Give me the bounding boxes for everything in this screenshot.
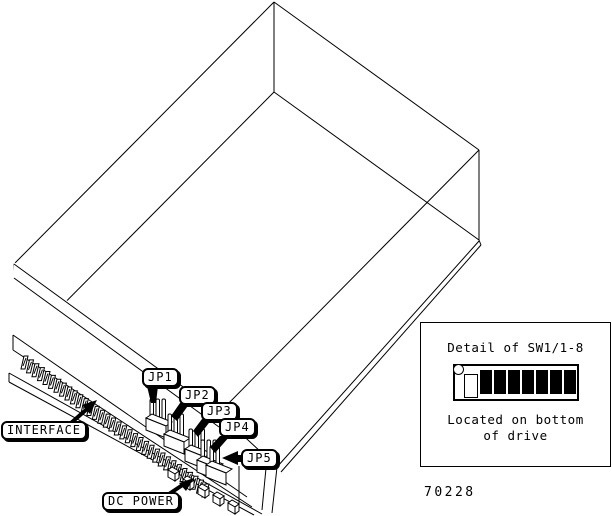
- dip-switch-body: [453, 364, 579, 401]
- dip-switch-6: [536, 370, 548, 394]
- dip-switch-3: [494, 370, 506, 394]
- figure-canvas: JP1 JP2 JP3 JP4 JP5 INTERFACE DC POWER D…: [0, 0, 612, 516]
- callout-jp5: JP5: [241, 449, 278, 468]
- inset-caption: Located on bottom of drive: [421, 412, 610, 444]
- callout-interface: INTERFACE: [1, 421, 87, 440]
- front-assembly-face: [8, 262, 278, 516]
- dip-switch-8: [564, 370, 576, 394]
- inset-caption-line2: of drive: [421, 428, 610, 444]
- pcb-right-cap: [479, 240, 481, 245]
- inset-caption-line1: Located on bottom: [421, 412, 610, 428]
- dip-switch-7: [550, 370, 562, 394]
- figure-number: 70228: [424, 485, 476, 500]
- box-hidden-edge: [274, 92, 479, 240]
- dip-switch-2: [480, 370, 492, 394]
- dip-switch-5: [522, 370, 534, 394]
- callout-jp4: JP4: [219, 418, 256, 437]
- dip-switch-cells: [464, 366, 578, 399]
- callout-dc-power: DC POWER: [102, 492, 180, 511]
- dip-switch-4: [508, 370, 520, 394]
- dip-switch-1: [464, 374, 478, 398]
- dip-pin1-marker-icon: [453, 364, 464, 375]
- inset-title: Detail of SW1/1-8: [421, 340, 610, 355]
- callout-jp1: JP1: [142, 368, 179, 387]
- sw1-detail-inset: Detail of SW1/1-8 Located on bottom of d…: [420, 322, 611, 467]
- box-edge: [14, 2, 274, 264]
- box-edge: [274, 2, 479, 150]
